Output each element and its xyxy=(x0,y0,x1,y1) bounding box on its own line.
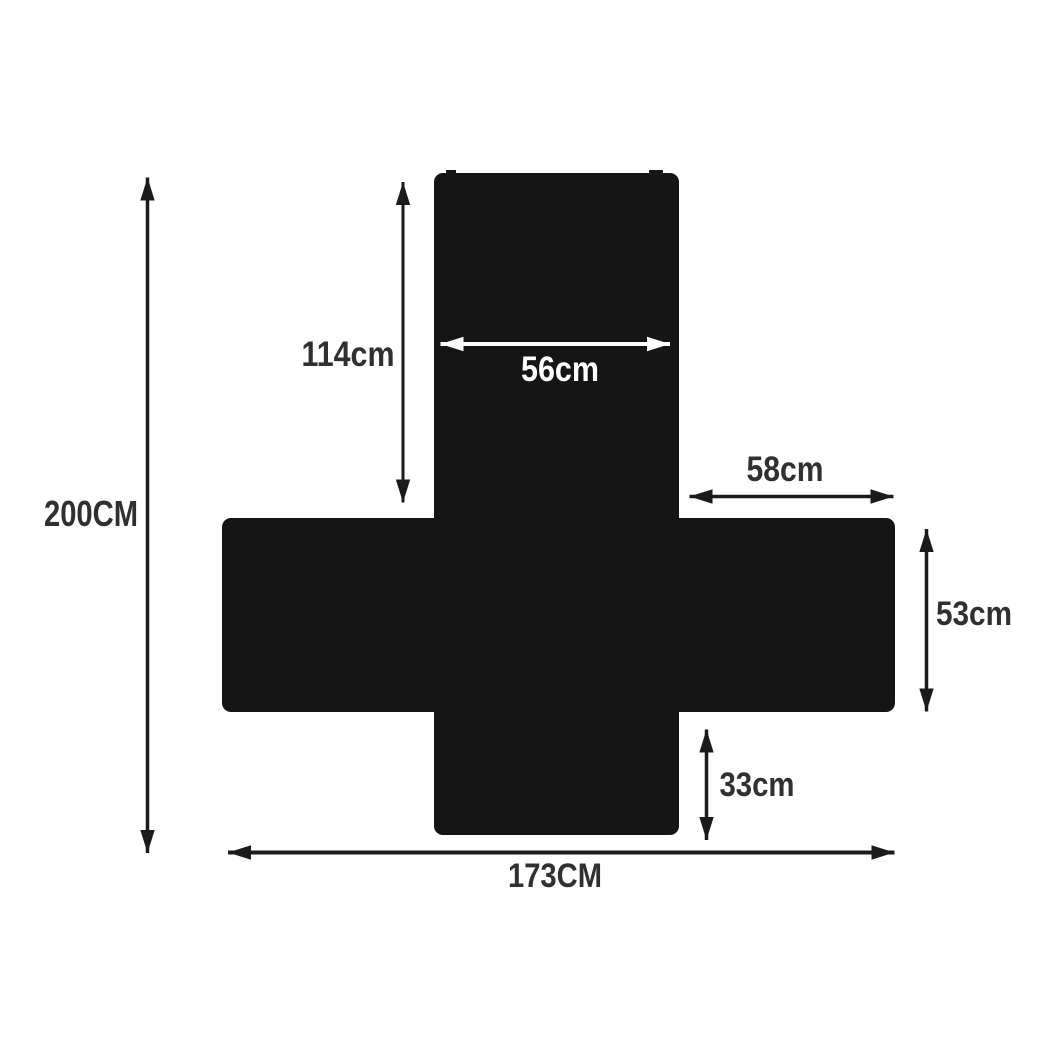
svg-text:53cm: 53cm xyxy=(936,595,1012,633)
svg-text:58cm: 58cm xyxy=(747,450,824,489)
svg-text:56cm: 56cm xyxy=(521,350,599,389)
svg-text:114cm: 114cm xyxy=(302,335,395,374)
svg-text:33cm: 33cm xyxy=(720,766,795,804)
svg-text:173CM: 173CM xyxy=(508,857,602,895)
svg-text:200CM: 200CM xyxy=(44,493,138,534)
